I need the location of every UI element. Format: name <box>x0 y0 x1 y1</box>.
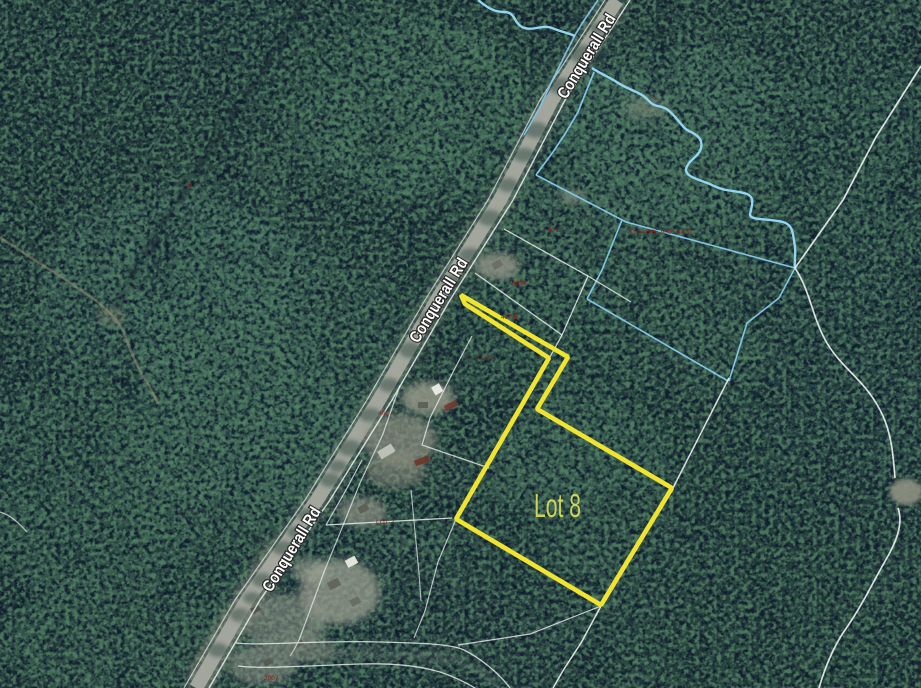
svg-text:4995: 4995 <box>512 280 527 287</box>
svg-text:Lot 8: Lot 8 <box>534 487 581 524</box>
svg-text:LOT 2: LOT 2 <box>376 519 394 526</box>
svg-text:497 A: 497 A <box>378 410 395 417</box>
svg-text:LOT 2: LOT 2 <box>478 355 496 362</box>
svg-text:LOT 1985 9001-4470: LOT 1985 9001-4470 <box>630 229 692 236</box>
svg-text:497 B: 497 B <box>501 314 518 321</box>
svg-text:41: 41 <box>186 183 193 189</box>
svg-text:2007: 2007 <box>264 675 279 682</box>
svg-text:4715: 4715 <box>548 227 563 234</box>
